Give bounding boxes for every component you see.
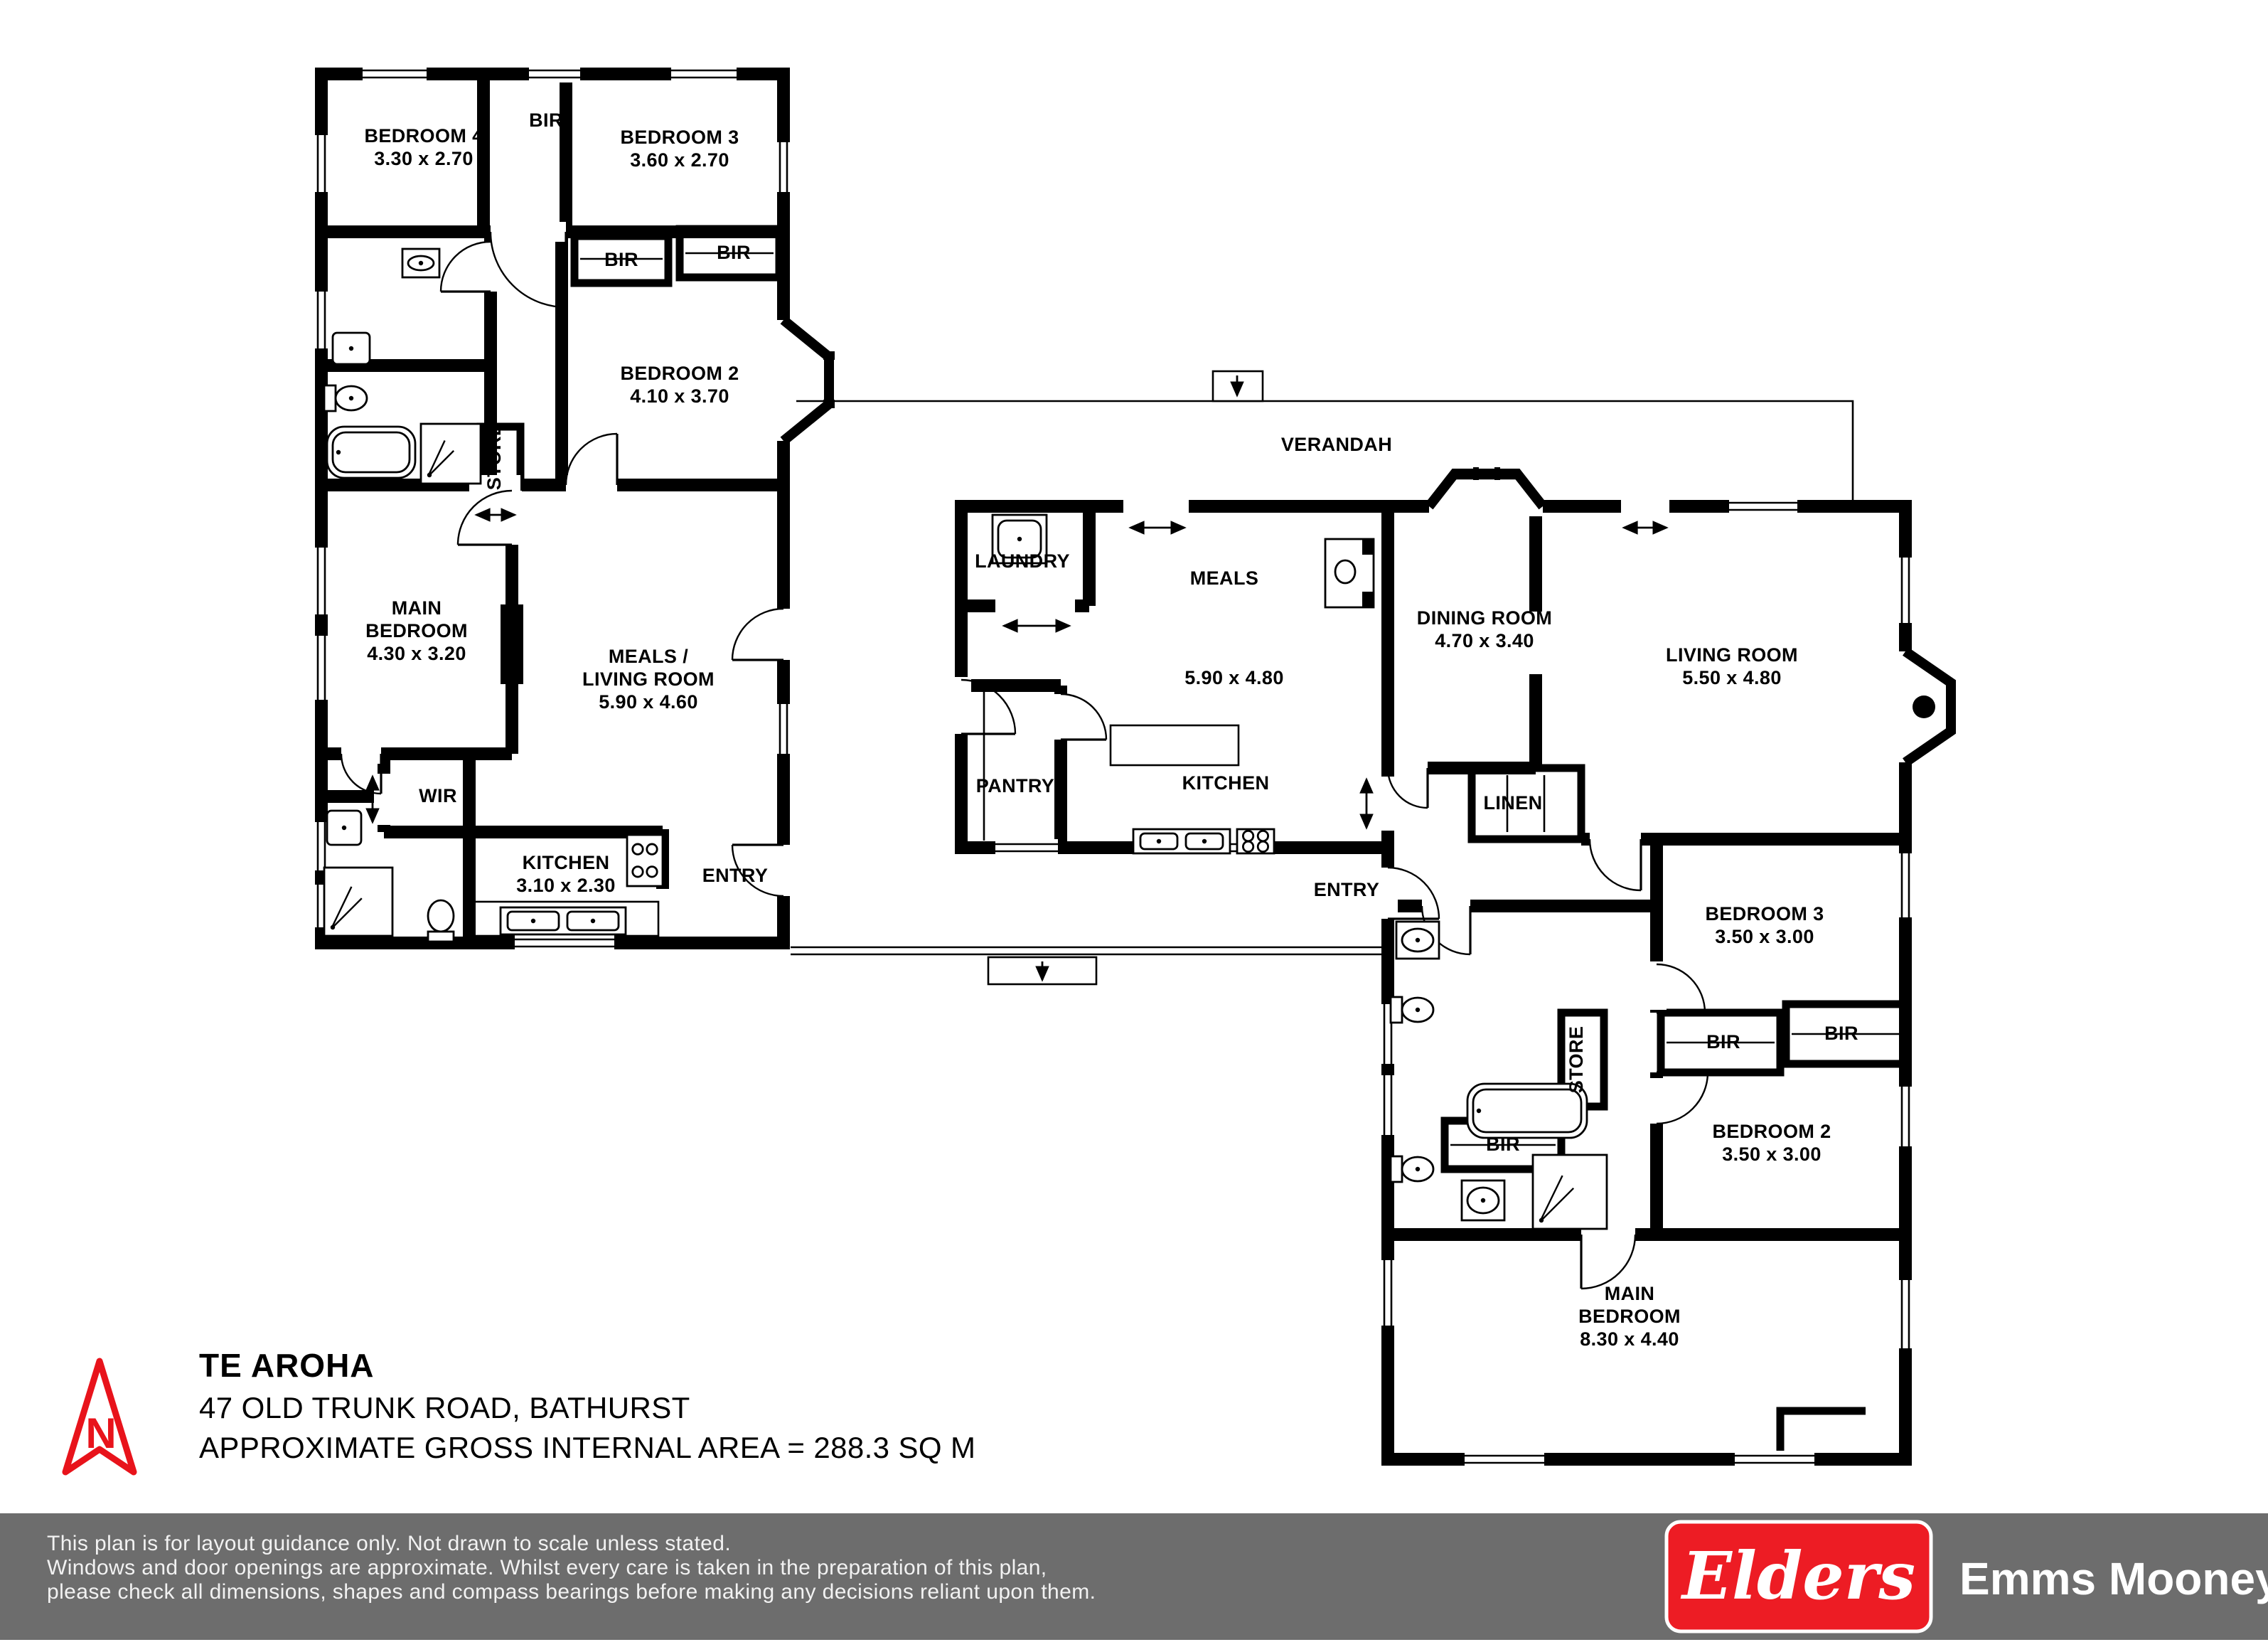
toilet-bowl [428, 900, 454, 932]
window [1897, 558, 1914, 623]
label-living-room: LIVING ROOM5.50 x 4.80 [1666, 644, 1798, 688]
tap-dot [1539, 1218, 1544, 1222]
label-main-bedroom-right: MAINBEDROOM8.30 x 4.40 [1578, 1283, 1681, 1350]
property-area: APPROXIMATE GROSS INTERNAL AREA = 288.3 … [199, 1431, 975, 1464]
opening [774, 845, 793, 896]
agency-name: Emms Mooney [1959, 1553, 2268, 1604]
tap-dot [1017, 537, 1022, 541]
burner [647, 867, 657, 877]
disclaimer-line-3: please check all dimensions, shapes and … [47, 1580, 1096, 1604]
footer-bar: This plan is for layout guidance only. N… [0, 1513, 2268, 1640]
tap-dot [349, 346, 353, 351]
label-bir-b: BIR [717, 242, 751, 263]
tap-dot [331, 925, 335, 929]
window [995, 839, 1058, 856]
window [1379, 1075, 1396, 1135]
label-entry-left: ENTRY [702, 865, 769, 886]
tap-dot [349, 396, 353, 400]
floor-plan-canvas: BEDROOM 43.30 x 2.70BIRBEDROOM 33.60 x 2… [0, 0, 2268, 1647]
opening [1590, 829, 1641, 849]
bath-inner [1473, 1089, 1581, 1132]
opening [1378, 868, 1398, 919]
window [775, 704, 792, 754]
tap-dot [1416, 1008, 1420, 1012]
floor-plan-page: BEDROOM 43.30 x 2.70BIRBEDROOM 33.60 x 2… [0, 0, 2268, 1647]
tap-dot [591, 919, 595, 923]
tap-dot [336, 450, 341, 454]
toilet-tank [1391, 1156, 1402, 1182]
wall-tick [1473, 467, 1479, 480]
tap-dot [427, 473, 432, 477]
tap-dot [1481, 1198, 1485, 1203]
title-block: TE AROHA 47 OLD TRUNK ROAD, BATHURST APP… [199, 1347, 975, 1464]
window [1897, 853, 1914, 917]
label-bedroom2-right: BEDROOM 23.50 x 3.00 [1712, 1121, 1831, 1165]
label-bir-c: BIR [1706, 1031, 1740, 1052]
label-bedroom3-left: BEDROOM 33.60 x 2.70 [620, 127, 739, 171]
tap-dot [1157, 839, 1161, 843]
label-bedroom2-left: BEDROOM 24.10 x 3.70 [620, 363, 739, 407]
burner [633, 844, 643, 854]
label-pantry: PANTRY [976, 775, 1054, 796]
label-linen: LINEN [1484, 792, 1543, 814]
label-bedroom3-right: BEDROOM 33.50 x 3.00 [1705, 903, 1824, 947]
opening [1429, 496, 1543, 516]
label-verandah: VERANDAH [1281, 434, 1392, 455]
opening [491, 222, 566, 242]
label-bir-bath: BIR [1486, 1134, 1520, 1155]
window [1735, 1451, 1814, 1468]
window [1897, 1280, 1914, 1348]
label-bir-top: BIR [529, 110, 563, 131]
fireplace-pier [1362, 539, 1374, 555]
burner [1258, 841, 1268, 851]
label-bedroom4-left: BEDROOM 43.30 x 2.70 [364, 125, 483, 169]
wall-tick [1494, 467, 1500, 480]
tap-dot [342, 826, 346, 830]
label-kitchen-mid: KITCHEN [1182, 772, 1270, 794]
opening [1647, 961, 1667, 1010]
disclaimer-line-1: This plan is for layout guidance only. N… [47, 1532, 731, 1555]
tap-dot [531, 919, 535, 923]
label-meals-mid-dims: 5.90 x 4.80 [1184, 667, 1284, 688]
label-bir-d: BIR [1824, 1023, 1858, 1044]
property-address: 47 OLD TRUNK ROAD, BATHURST [199, 1391, 690, 1424]
label-bir-a: BIR [604, 249, 638, 270]
window [515, 934, 614, 952]
window [313, 292, 330, 348]
toilet-tank [428, 932, 454, 942]
disclaimer-line-2: Windows and door openings are approximat… [47, 1556, 1047, 1579]
wall-tick [823, 400, 835, 408]
label-laundry: LAUNDRY [975, 550, 1070, 572]
label-main-bedroom-left: MAINBEDROOM4.30 x 3.20 [365, 597, 468, 664]
opening [566, 475, 617, 495]
fireplace-pier [1362, 592, 1374, 607]
wall-tick [501, 604, 523, 684]
window [775, 142, 792, 192]
elders-logo-word: Elders [1680, 1537, 1915, 1614]
north-letter: N [85, 1409, 116, 1457]
tap-dot [1202, 839, 1207, 843]
opening [481, 242, 501, 292]
burner [1243, 831, 1253, 841]
window [671, 65, 737, 82]
burner [633, 867, 643, 877]
opening [1123, 496, 1189, 516]
label-meals-mid: MEALS [1190, 567, 1259, 589]
tap-dot [419, 261, 423, 265]
tap-dot [1477, 1109, 1481, 1113]
label-store-left: STORE [483, 423, 505, 491]
opening [1647, 1078, 1667, 1124]
property-name: TE AROHA [199, 1347, 375, 1384]
burner [1243, 841, 1253, 851]
window [1379, 1260, 1396, 1326]
toilet-tank [324, 385, 336, 411]
opening [1378, 777, 1398, 831]
window [1897, 1087, 1914, 1146]
opening [995, 596, 1075, 616]
window [1729, 498, 1797, 515]
opening [774, 320, 793, 441]
opening [1422, 896, 1470, 916]
burner [1258, 831, 1268, 841]
window [313, 548, 330, 614]
opening [374, 774, 394, 825]
cooktop [627, 835, 663, 886]
windows [313, 65, 1914, 1468]
window [313, 636, 330, 700]
elders-logo: Elders [1667, 1522, 1931, 1631]
toilet-tank [1391, 997, 1402, 1023]
door-arc [491, 232, 566, 307]
opening [1895, 651, 1915, 762]
label-store-right: STORE [1566, 1026, 1587, 1094]
window [1465, 1451, 1544, 1468]
window [363, 65, 427, 82]
walls [321, 74, 1905, 1459]
opening [1621, 496, 1669, 516]
opening [951, 677, 971, 734]
opening [502, 491, 522, 545]
bath-inner [333, 432, 410, 472]
label-dining-room: DINING ROOM4.70 x 3.40 [1417, 607, 1552, 651]
detail-rect [1111, 725, 1239, 765]
burner [647, 844, 657, 854]
label-wir: WIR [419, 785, 457, 806]
wall-tick [823, 351, 835, 360]
tap-dot [1416, 1167, 1420, 1171]
window [529, 65, 580, 82]
tap-dot [1416, 938, 1420, 942]
window [313, 135, 330, 192]
opening [774, 609, 793, 660]
label-kitchen-left: KITCHEN3.10 x 2.30 [516, 852, 616, 896]
north-arrow-icon: N [65, 1361, 134, 1472]
label-meals-living: MEALS /LIVING ROOM5.90 x 4.60 [582, 646, 715, 713]
opening [1051, 694, 1071, 740]
cooktop [1237, 829, 1274, 853]
opening [341, 744, 381, 764]
fireplace-flue [1335, 560, 1355, 583]
label-entry-mid: ENTRY [1314, 879, 1380, 900]
fireplace-dot [1913, 695, 1935, 718]
